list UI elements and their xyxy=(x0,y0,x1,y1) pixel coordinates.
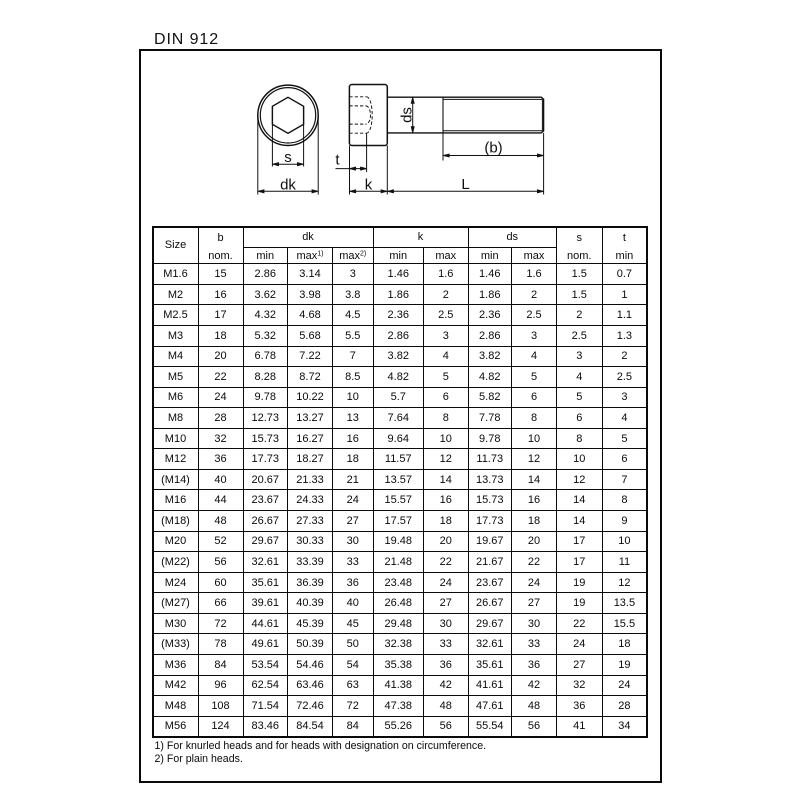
svg-text:k: k xyxy=(365,176,373,193)
svg-text:L: L xyxy=(461,176,469,193)
svg-text:ds: ds xyxy=(399,107,416,123)
svg-text:s: s xyxy=(284,149,292,166)
svg-text:(b): (b) xyxy=(484,140,502,157)
svg-text:t: t xyxy=(335,152,340,169)
svg-text:dk: dk xyxy=(280,176,296,193)
